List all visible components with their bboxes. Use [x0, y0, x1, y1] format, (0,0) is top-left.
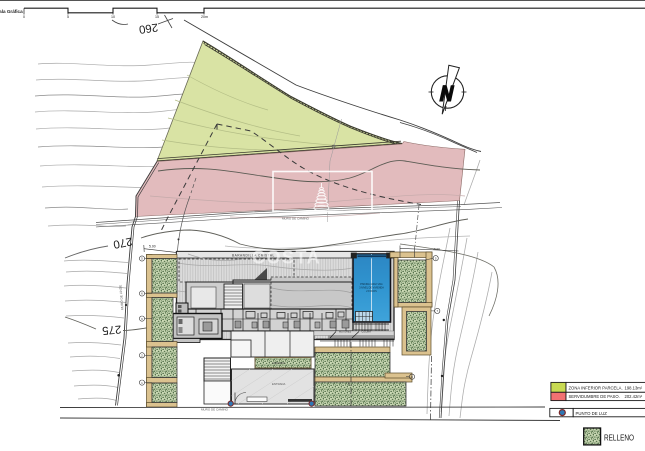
svg-text:5: 5 — [67, 15, 69, 19]
svg-text:COCINA: COCINA — [362, 330, 372, 333]
svg-text:0: 0 — [23, 15, 25, 19]
svg-text:RELLENO: RELLENO — [604, 433, 634, 443]
svg-text:20m: 20m — [201, 15, 208, 19]
svg-text:PUNTO DE LUZ: PUNTO DE LUZ — [576, 411, 608, 416]
svg-text:275: 275 — [102, 323, 122, 337]
svg-text:MOTORES: MOTORES — [339, 330, 351, 333]
svg-text:202.42m²: 202.42m² — [625, 394, 643, 399]
svg-text:-6.00: -6.00 — [433, 247, 440, 251]
svg-text:Escala Gráfica: Escala Gráfica — [0, 9, 23, 14]
svg-text:198.13m²: 198.13m² — [625, 385, 643, 390]
svg-text:MURO DE CAMINO: MURO DE CAMINO — [201, 408, 229, 412]
svg-text:JARDINERA: JARDINERA — [272, 362, 286, 365]
svg-text:15: 15 — [155, 15, 159, 19]
svg-text:3 NIVEL DE VIVIENDA: 3 NIVEL DE VIVIENDA — [359, 287, 384, 290]
svg-text:SERVIDUMBRE DE PASO.: SERVIDUMBRE DE PASO. — [569, 394, 620, 399]
svg-text:10: 10 — [111, 15, 115, 19]
svg-text:ENTRADA: ENTRADA — [272, 382, 285, 386]
svg-text:PISCINA 4.00x7.20m: PISCINA 4.00x7.20m — [360, 283, 383, 286]
svg-text:2 FOCOS: 2 FOCOS — [366, 290, 377, 293]
svg-text:MURO DE CAMINO: MURO DE CAMINO — [282, 217, 310, 221]
svg-text:5.00: 5.00 — [149, 245, 156, 249]
svg-text:COSTA: COSTA — [252, 248, 321, 268]
svg-text:ZONA INFERIOR PARCELA.: ZONA INFERIOR PARCELA. — [569, 385, 623, 390]
svg-text:B: B — [348, 382, 350, 386]
